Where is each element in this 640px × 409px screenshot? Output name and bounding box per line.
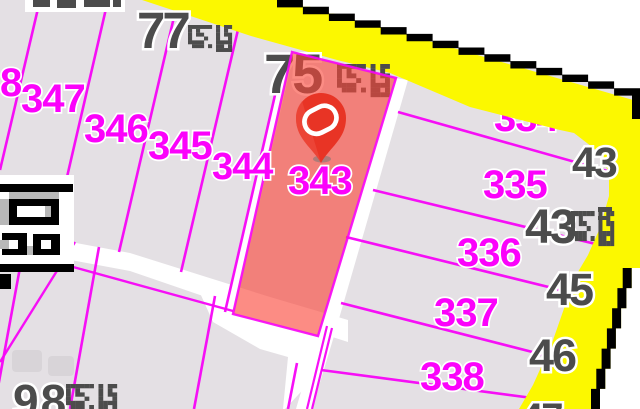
svg-text:77: 77 xyxy=(137,2,189,59)
svg-text:46: 46 xyxy=(529,330,576,381)
svg-text:43: 43 xyxy=(572,139,617,187)
svg-text:335: 335 xyxy=(483,163,547,207)
svg-text:344: 344 xyxy=(212,146,273,188)
svg-text:98: 98 xyxy=(13,375,68,409)
svg-text:338: 338 xyxy=(420,355,484,399)
svg-text:337: 337 xyxy=(434,291,498,335)
svg-text:347: 347 xyxy=(21,77,85,121)
svg-text:346: 346 xyxy=(84,107,148,151)
svg-text:336: 336 xyxy=(457,231,521,275)
svg-text:8: 8 xyxy=(0,61,22,105)
svg-text:47: 47 xyxy=(521,396,562,409)
svg-text:345: 345 xyxy=(148,124,212,168)
svg-text:43: 43 xyxy=(525,201,575,254)
svg-text:45: 45 xyxy=(546,264,593,315)
svg-text:343: 343 xyxy=(288,159,352,203)
